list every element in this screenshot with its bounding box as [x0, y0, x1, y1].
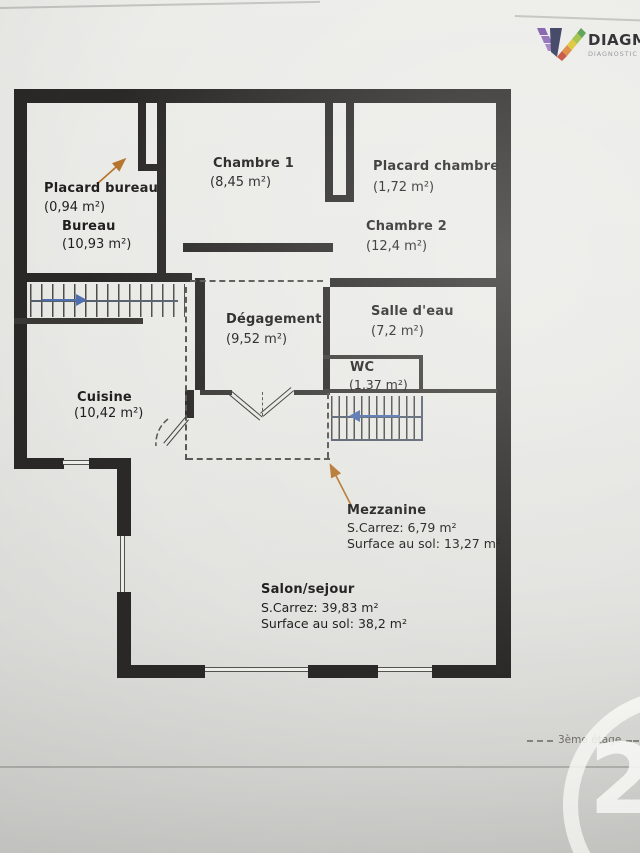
- room-label-cuisine: Cuisine: [77, 390, 132, 405]
- mezzanine-boundary-bottom: [187, 458, 330, 460]
- door-leaf-french-left: [229, 391, 263, 421]
- room-carrez-mezzanine: S.Carrez: 6,79 m²: [347, 520, 457, 535]
- room-area-placard-chambre: (1,72 m²): [373, 180, 434, 195]
- room-surface-salon: Surface au sol: 38,2 m²: [261, 616, 407, 631]
- wall-bureau-bottom: [14, 273, 192, 282]
- wall-placard-chambre-cap: [325, 195, 354, 202]
- mezzanine-boundary-left: [185, 287, 187, 460]
- paper-edge-top-right: [515, 15, 640, 22]
- window-cuisine: [63, 460, 90, 465]
- wall-degagement-bottom-right: [294, 390, 330, 395]
- room-label-bureau: Bureau: [62, 219, 116, 234]
- staircase-right: [331, 396, 421, 439]
- room-area-placard-bureau: (0,94 m²): [44, 200, 105, 215]
- wall-degagement-bottom-left: [200, 390, 232, 395]
- wall-chambre2-bottom: [330, 278, 496, 287]
- annotation-arrows: [0, 0, 640, 853]
- wall-wc-to-outer: [423, 389, 497, 393]
- wall-degagement-left: [195, 278, 205, 390]
- room-label-chambre2: Chambre 2: [366, 219, 447, 234]
- room-label-salle-eau: Salle d'eau: [371, 304, 454, 319]
- window-salon-left: [120, 536, 125, 592]
- wall-wc-top: [323, 355, 423, 359]
- wall-placard-chambre: [346, 89, 354, 195]
- room-area-bureau: (10,93 m²): [62, 237, 131, 252]
- door-leaf-french-right: [260, 387, 294, 417]
- floor-plan-photo: Placard bureau (0,94 m²) Bureau (10,93 m…: [0, 0, 640, 853]
- wall-chambre1-bottom: [183, 243, 333, 252]
- door-french-centerline: [262, 392, 263, 416]
- brand-tagline: DIAGNOSTIC IM: [588, 50, 640, 58]
- wall-placard-bureau-cap: [138, 164, 164, 171]
- wall-salon-bottom-1: [117, 665, 205, 678]
- room-label-placard-bureau: Placard bureau: [44, 181, 158, 196]
- staircase-right-arrow-tail: [360, 415, 400, 417]
- mezzanine-boundary-right: [327, 393, 329, 458]
- room-label-chambre1: Chambre 1: [213, 156, 294, 171]
- wall-bureau-right: [157, 89, 166, 282]
- wall-chambre1-right: [325, 89, 333, 195]
- wall-salon-left-upper: [117, 458, 131, 536]
- room-surface-mezzanine: Surface au sol: 13,27 m²: [347, 536, 501, 551]
- wall-salon-bottom-2: [308, 665, 378, 678]
- room-label-mezzanine: Mezzanine: [347, 503, 426, 518]
- wall-outer-right: [496, 89, 511, 678]
- floor-legend-dash-left: [527, 740, 553, 742]
- staircase-left-arrow-tail: [42, 299, 78, 301]
- wall-salle-eau-left: [323, 287, 330, 393]
- room-area-wc: (1,37 m²): [349, 377, 408, 392]
- mezzanine-boundary-top: [190, 280, 323, 282]
- window-salon-bottom-2: [378, 667, 432, 672]
- room-area-degagement: (9,52 m²): [226, 332, 287, 347]
- paper-edge-bottom: [0, 766, 640, 768]
- paper-edge-top-left: [0, 1, 320, 9]
- wall-placard-bureau: [138, 89, 146, 164]
- multicolor-v-checkmark-icon: [536, 26, 588, 64]
- room-label-placard-chambre: Placard chambre: [373, 159, 499, 174]
- wall-outer-top: [14, 89, 511, 103]
- brand-name: DIAGMA: [588, 31, 640, 49]
- room-label-salon: Salon/sejour: [261, 582, 355, 597]
- staircase-right-right-edge: [421, 396, 423, 441]
- room-label-degagement: Dégagement: [226, 312, 322, 327]
- wall-wc-right: [419, 355, 423, 393]
- room-area-chambre1: (8,45 m²): [210, 175, 271, 190]
- arrow-right-icon: [76, 294, 87, 306]
- wall-salon-bottom-3: [432, 665, 511, 678]
- arrow-left-icon: [349, 410, 360, 422]
- wall-cuisine-bottom-left: [14, 458, 64, 469]
- brand-text-block: DIAGMA DIAGNOSTIC IM: [588, 31, 640, 58]
- room-carrez-salon: S.Carrez: 39,83 m²: [261, 600, 378, 615]
- room-area-chambre2: (12,4 m²): [366, 239, 427, 254]
- mezzanine-pointer-arrow: [331, 466, 352, 507]
- wall-cuisine-top: [14, 318, 143, 324]
- century21-watermark-text: 21: [589, 723, 640, 836]
- room-area-salle-eau: (7,2 m²): [371, 324, 424, 339]
- window-salon-bottom-1: [205, 667, 308, 672]
- room-area-cuisine: (10,42 m²): [74, 406, 143, 421]
- room-label-wc: WC: [350, 360, 374, 375]
- staircase-right-bottom-edge: [331, 439, 423, 441]
